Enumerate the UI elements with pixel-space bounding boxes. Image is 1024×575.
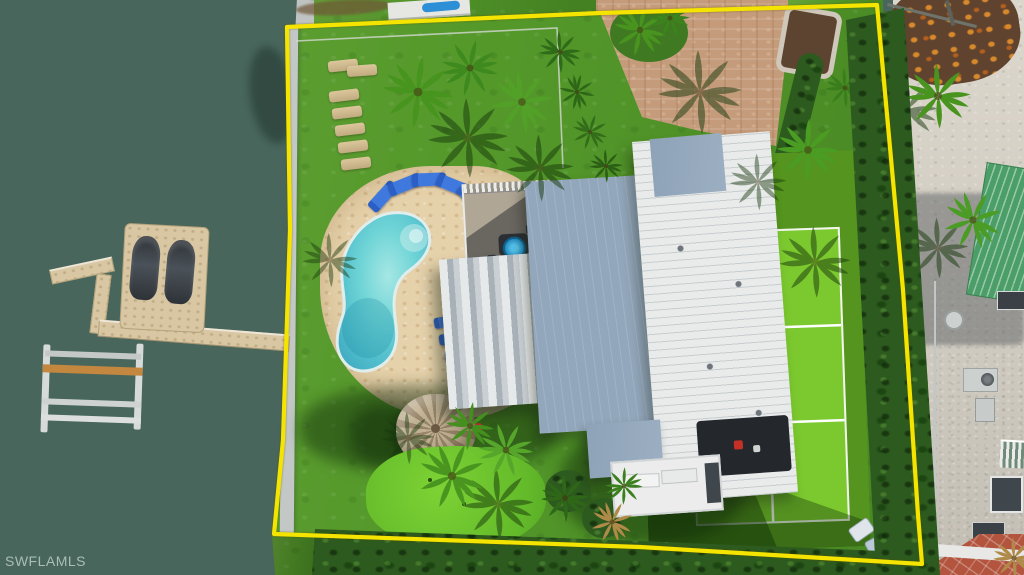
palm-tree xyxy=(774,116,842,184)
boat-lift-beam-wood xyxy=(43,364,143,375)
palm-tree xyxy=(539,31,581,73)
palm-shadow xyxy=(382,412,435,465)
palm-shadow xyxy=(506,134,573,201)
palm-tree xyxy=(597,459,650,512)
bush xyxy=(589,149,623,183)
palm-shadow xyxy=(303,233,358,288)
boat-lift-beam xyxy=(41,398,141,407)
palm-tree xyxy=(993,537,1024,575)
aerial-photo: SWFLAMLS xyxy=(0,0,1024,575)
palm-shadow xyxy=(428,98,508,178)
palm-shadow xyxy=(658,50,742,134)
palm-tree xyxy=(541,474,589,522)
palm-tree xyxy=(442,398,498,454)
palm-shadow xyxy=(462,468,533,539)
palm-shadow xyxy=(730,154,787,211)
boat-lift xyxy=(40,340,143,435)
palm-shadow xyxy=(779,226,850,297)
bush xyxy=(567,109,613,155)
mls-watermark: SWFLAMLS xyxy=(5,553,86,569)
boat-lift-beam xyxy=(41,414,141,423)
boat-lift-beam xyxy=(45,350,141,359)
